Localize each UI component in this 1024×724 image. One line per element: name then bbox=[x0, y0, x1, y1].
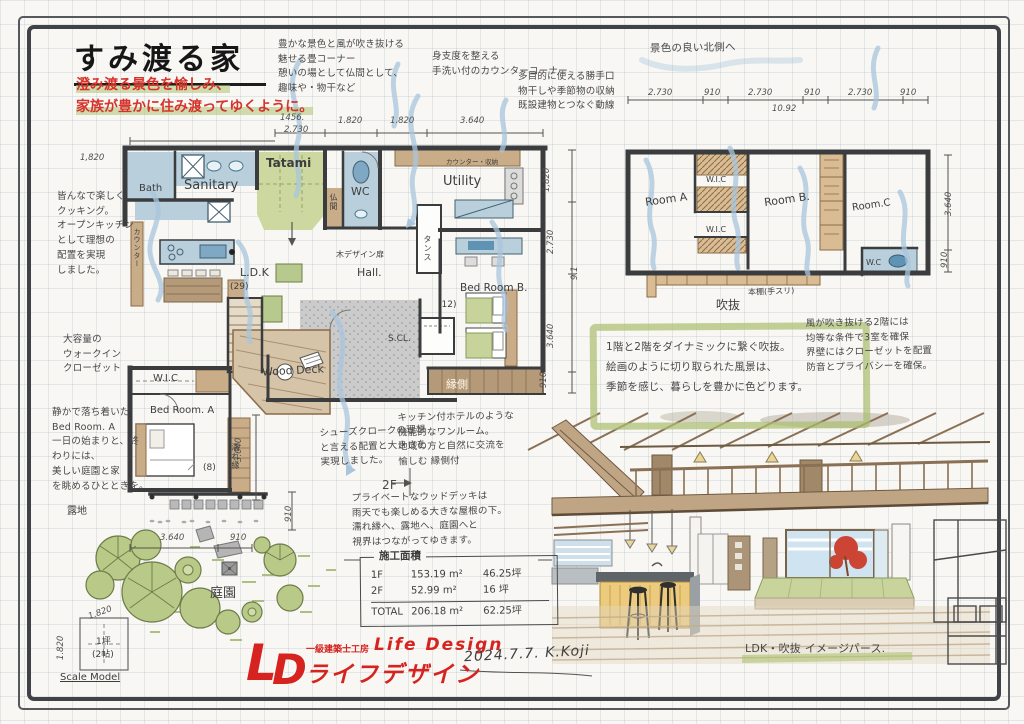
label-fukinuke: 吹抜 bbox=[716, 296, 740, 313]
note-one-room: キッチン付ホテルのような 機能的なワンルーム。 地域の方と自然に交流を 愉しむ … bbox=[397, 409, 568, 471]
label-tansu: タンス bbox=[422, 235, 433, 262]
sketch-canvas: L D すみ渡る家 澄み渡る景色を愉しみ、 家族が豊かに住み渡ってゆくように。 … bbox=[0, 0, 1024, 724]
dim-1f-right-3: 3.640 bbox=[546, 324, 556, 348]
room-label-butsuma: 仏間 bbox=[328, 193, 339, 211]
dim-1f-right-4: 910 bbox=[539, 372, 549, 388]
room-label-2f-wc: W.C bbox=[866, 258, 881, 267]
room-label-utility: Utility bbox=[443, 174, 481, 189]
note-wic: 大容量の ウォークイン クローゼット bbox=[63, 333, 158, 377]
logo-letter-d: D bbox=[272, 645, 307, 694]
area-table-title: 施工面積 bbox=[374, 548, 426, 563]
dim-1f-right-2: 9.1 bbox=[570, 266, 580, 280]
label-roji: 露地 bbox=[67, 502, 87, 517]
label-wood-deck: Wood Deck bbox=[262, 362, 324, 378]
dim-2f-top-2: 2.730 bbox=[748, 88, 772, 98]
room-label-wic-1f: W.I.C bbox=[153, 373, 178, 384]
room-label-sanitary: Sanitary bbox=[184, 178, 238, 193]
room-label-2f-c: Room.C bbox=[851, 197, 891, 213]
room-label-bedroom-a: Bed Room. A bbox=[150, 405, 214, 416]
room-label-ldk: L.D.K bbox=[240, 266, 269, 279]
dim-deck: 3.640 bbox=[234, 438, 244, 462]
dim-1f-top-4: 3.640 bbox=[460, 116, 484, 126]
plan-2f bbox=[628, 152, 928, 297]
scale-model-label: Scale Model bbox=[60, 672, 120, 683]
room-label-2f-b: Room B. bbox=[763, 190, 810, 209]
area-row-m2: 206.18 m² bbox=[411, 604, 483, 621]
note-second-floor: 風が吹き抜ける2階には 均等な条件で3室を確保 界壁にはクローゼットを配置 防音… bbox=[805, 315, 956, 376]
area-row-tsubo: 46.25坪 bbox=[483, 566, 539, 583]
room-label-scl: S.CL. bbox=[388, 334, 411, 344]
dim-garden-2: 910 bbox=[284, 506, 294, 522]
label-wood-door: 木デザイン扉 bbox=[336, 249, 384, 260]
label-bookshelf: 本棚(手スリ) bbox=[748, 285, 795, 298]
area-row-tsubo: 62.25坪 bbox=[483, 603, 539, 620]
room-label-hall: Hall. bbox=[357, 266, 382, 279]
note-cooking: 皆んなで楽しく クッキング。 オープンキッチン として理想の 配置を実現 しまし… bbox=[57, 190, 167, 278]
dim-garden-1: 910 bbox=[230, 533, 246, 543]
dim-2f-top-1: 910 bbox=[704, 88, 720, 98]
room-label-engawa: 縁側 bbox=[446, 376, 468, 392]
room-label-bath: Bath bbox=[139, 183, 162, 194]
dim-1f-top-3: 1.820 bbox=[390, 116, 414, 126]
room-size-bedroom-b: (12) bbox=[438, 300, 456, 310]
dim-garden-0: 3.640 bbox=[160, 533, 184, 543]
dim-2f-total: 10.92 bbox=[772, 104, 796, 114]
room-label-2f-wic2: W.I.C bbox=[706, 225, 726, 234]
label-counter-storage: カウンター・収納 bbox=[446, 156, 498, 166]
dim-1f-top-2: 1.820 bbox=[338, 116, 362, 126]
dim-scale-1: 1.820 bbox=[56, 636, 66, 660]
dim-2f-top-0: 2.730 bbox=[648, 88, 672, 98]
garden bbox=[80, 500, 336, 670]
scale-model-area: 1坪 bbox=[96, 634, 111, 647]
dim-2f-right-1: 910 bbox=[940, 252, 950, 268]
room-size-bedroom-a: (8) bbox=[203, 463, 216, 473]
room-label-tatami: Tatami bbox=[266, 156, 311, 170]
room-label-bedroom-b: Bed Room B. bbox=[460, 282, 527, 294]
note-tatami-corner: 豊かな景色と風が吹き抜ける 魅せる畳コーナー 憩いの場として仏間として、 趣味や… bbox=[278, 38, 443, 97]
tagline-1: 澄み渡る景色を愉しみ、 bbox=[76, 74, 230, 94]
area-row-name: TOTAL bbox=[371, 605, 411, 621]
perspective-sketch bbox=[528, 411, 1006, 664]
note-north-view: 景色の良い北側へ bbox=[650, 39, 736, 57]
area-row-m2: 52.99 m² bbox=[411, 583, 483, 600]
room-label-2f-a: Room A bbox=[644, 190, 688, 209]
dim-scale-0: 1.820 bbox=[87, 604, 113, 622]
area-table: 1F 153.19 m² 46.25坪 2F 52.99 m² 16 坪 TOT… bbox=[360, 555, 559, 627]
room-label-2f-wic1: W.I.C bbox=[706, 175, 726, 184]
label-teien: 庭園 bbox=[210, 582, 236, 601]
logo-brand-jp: ライフデザイン bbox=[305, 655, 480, 689]
logo-monogram: L D bbox=[246, 634, 307, 694]
note-service-door: 多目的に使える勝手口 物干しや季節物の収納 既設建物とつなぐ動線 bbox=[518, 70, 663, 114]
area-row-m2: 153.19 m² bbox=[411, 567, 483, 584]
logo-firm: 一級建築士工房 bbox=[306, 642, 369, 655]
room-size-ldk: (29) bbox=[230, 282, 248, 292]
area-row-2f: 2F 52.99 m² 16 坪 bbox=[371, 582, 549, 600]
tagline-2: 家族が豊かに住み渡ってゆくように。 bbox=[76, 96, 313, 116]
note-wood-deck: プライベートなウッドデッキは 雨天でも楽しめる大きな屋根の下。 濡れ縁へ、露地へ… bbox=[352, 488, 568, 551]
dim-2f-top-5: 910 bbox=[900, 88, 916, 98]
label-counter: カウンター bbox=[132, 228, 142, 268]
dim-1f-right-0: 1,820 bbox=[542, 168, 552, 192]
dim-1f-right-1: 2.730 bbox=[546, 230, 556, 254]
dim-2f-top-3: 910 bbox=[804, 88, 820, 98]
dim-2f-right-0: 3.640 bbox=[944, 192, 954, 216]
area-row-total: TOTAL 206.18 m² 62.25坪 bbox=[371, 600, 549, 621]
area-row-1f: 1F 153.19 m² 46.25坪 bbox=[371, 566, 549, 584]
logo-letter-l: L bbox=[246, 634, 278, 692]
scale-model-mats: (2帖) bbox=[92, 647, 114, 660]
perspective-caption: LDK・吹抜 イメージパース. bbox=[745, 640, 885, 657]
dim-1f-top-0: 1456. bbox=[280, 113, 304, 123]
area-row-name: 2F bbox=[371, 584, 411, 600]
area-row-name: 1F bbox=[371, 568, 411, 584]
dim-2f-top-4: 2.730 bbox=[848, 88, 872, 98]
note-bedroom-a: 静かで落ち着いた Bed Room. A 一日の始まりと、終 わりには、 美しい… bbox=[52, 406, 170, 494]
room-label-wc: WC bbox=[351, 185, 370, 198]
dim-1f-left: 1,820 bbox=[80, 153, 104, 163]
area-row-tsubo: 16 坪 bbox=[483, 582, 539, 599]
dim-1f-top-1: 2.730 bbox=[284, 125, 308, 135]
